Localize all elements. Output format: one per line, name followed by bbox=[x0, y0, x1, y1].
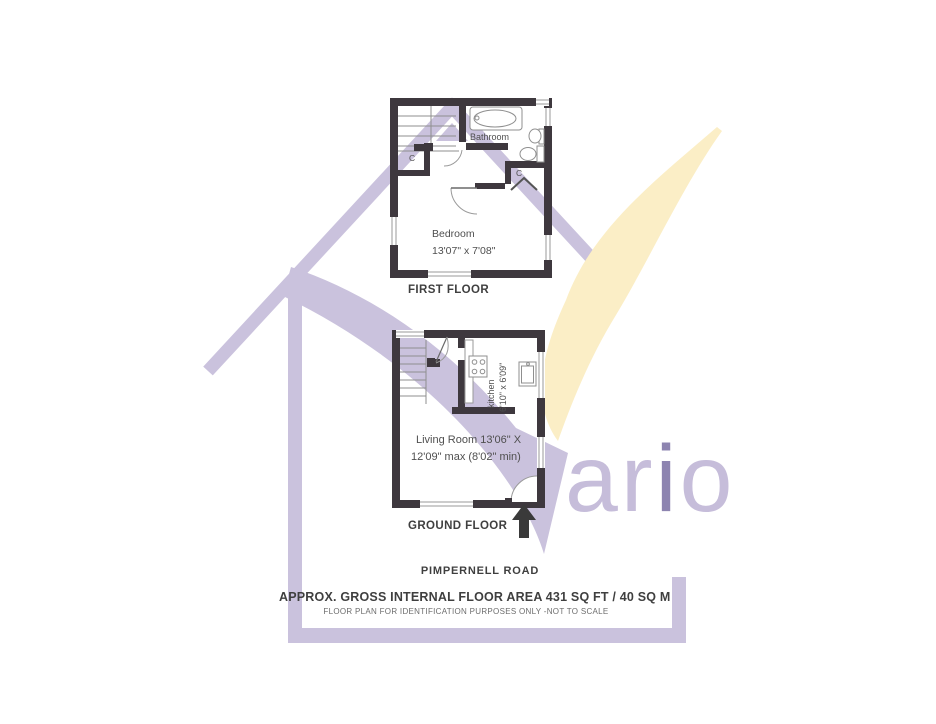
floor-area-text: APPROX. GROSS INTERNAL FLOOR AREA 431 SQ… bbox=[279, 590, 663, 604]
closet-left-label: C bbox=[409, 153, 415, 163]
floorplan-page: ario bbox=[0, 0, 936, 724]
living-room-line1: Living Room 13'06" X bbox=[416, 433, 521, 448]
road-name: PIMPERNELL ROAD bbox=[288, 565, 672, 577]
bedroom-label: Bedroom bbox=[432, 227, 475, 242]
kitchen-dimensions: 6'10" x 6'09" bbox=[497, 338, 509, 412]
bathroom-label: Bathroom bbox=[470, 130, 509, 145]
disclaimer-text: FLOOR PLAN FOR IDENTIFICATION PURPOSES O… bbox=[274, 607, 658, 616]
first-floor-title: FIRST FLOOR bbox=[408, 284, 489, 296]
labels-layer: Bathroom Bedroom 13'07" x 7'08" C C FIRS… bbox=[0, 0, 936, 724]
ground-floor-title: GROUND FLOOR bbox=[408, 520, 507, 532]
bedroom-dimensions: 13'07" x 7'08" bbox=[432, 244, 495, 259]
closet-right-label: C bbox=[516, 168, 522, 178]
kitchen-label: kitchen bbox=[485, 344, 497, 408]
living-room-line2: 12'09" max (8'02" min) bbox=[411, 450, 521, 465]
